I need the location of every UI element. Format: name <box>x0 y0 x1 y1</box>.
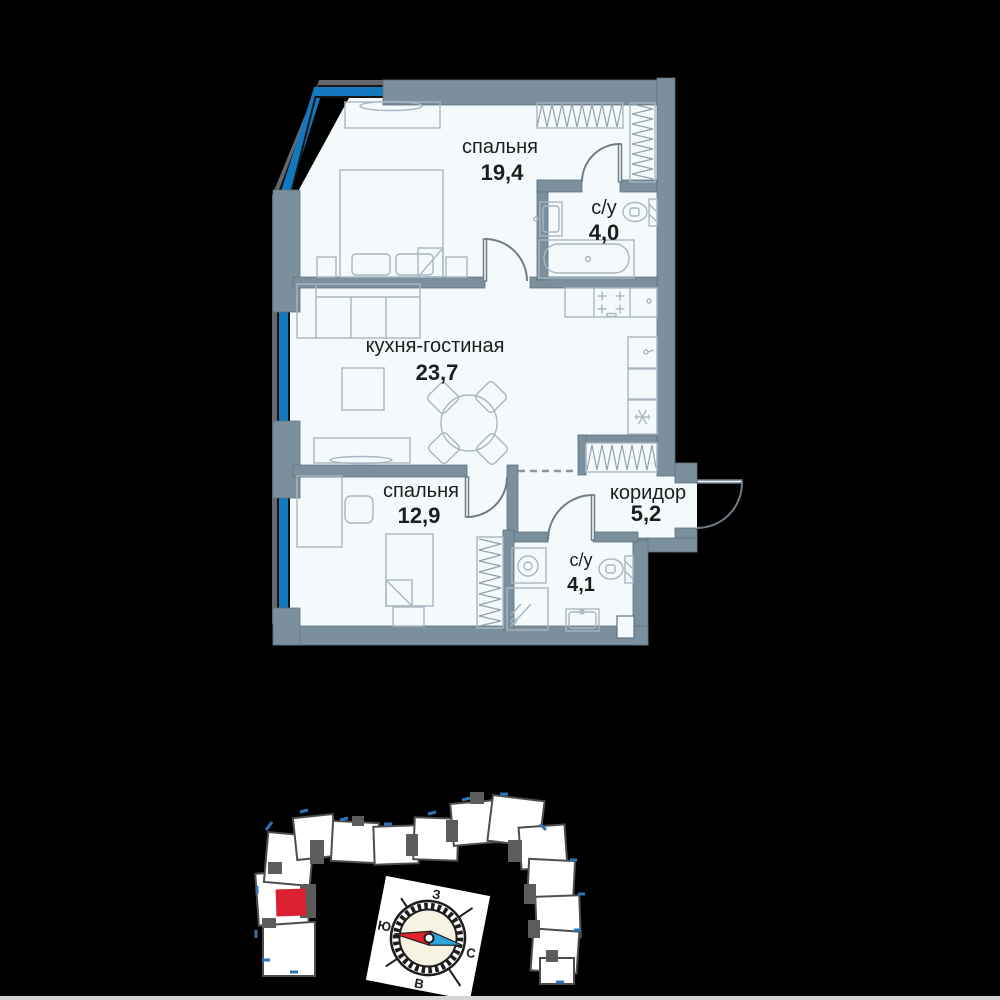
wall-bath2-top-right <box>593 532 638 542</box>
label-corridor-area: 5,2 <box>631 501 662 526</box>
wall-bottom <box>273 626 648 645</box>
label-bathroom2-name: с/у <box>569 550 592 570</box>
door-bathroom2 <box>592 495 595 540</box>
highlighted-unit[interactable] <box>276 888 307 916</box>
label-bathroom1-area: 4,0 <box>589 220 620 245</box>
label-bedroom1-name: спальня <box>462 136 538 158</box>
compass-label-south: Ю <box>376 917 392 934</box>
wall-closet-top <box>578 435 657 443</box>
label-kitchen-name: кухня-гостиная <box>366 335 505 357</box>
wall-partition-1-left <box>293 277 485 288</box>
label-bedroom2-name: спальня <box>383 480 459 502</box>
door-bedroom2 <box>466 477 469 517</box>
label-bathroom2-area: 4,1 <box>567 574 595 596</box>
wall-right <box>657 78 675 476</box>
wall-pier-3 <box>273 608 300 645</box>
apartment-plan-scene: спальня 19,4 с/у 4,0 кухня-гостиная 23,7… <box>0 0 1000 1000</box>
label-bathroom1-name: с/у <box>591 197 617 219</box>
wall-niche <box>617 616 634 638</box>
site-plan: З Ю С В <box>255 792 585 1000</box>
wall-top <box>383 80 657 105</box>
door-bedroom1 <box>484 239 487 281</box>
wall-pier-1 <box>273 190 300 312</box>
wall-entry-top <box>675 463 697 483</box>
floor-plan: спальня 19,4 с/у 4,0 кухня-гостиная 23,7… <box>273 78 742 645</box>
wall-partition-2 <box>293 465 467 477</box>
wall-pier-2 <box>273 421 300 498</box>
screenshot-canvas: спальня 19,4 с/у 4,0 кухня-гостиная 23,7… <box>0 0 1000 1000</box>
needle-pivot <box>424 933 434 943</box>
compass: З Ю С В <box>366 876 490 1000</box>
label-bedroom2-area: 12,9 <box>398 503 441 528</box>
label-bedroom1-area: 19,4 <box>481 160 525 185</box>
entry-door <box>697 480 742 483</box>
wall-closet-left <box>578 435 586 475</box>
wall-bath1-top-left <box>537 180 582 192</box>
door-bathroom1 <box>619 144 622 182</box>
label-kitchen-area: 23,7 <box>416 360 459 385</box>
bottom-edge-strip <box>0 996 1000 1000</box>
